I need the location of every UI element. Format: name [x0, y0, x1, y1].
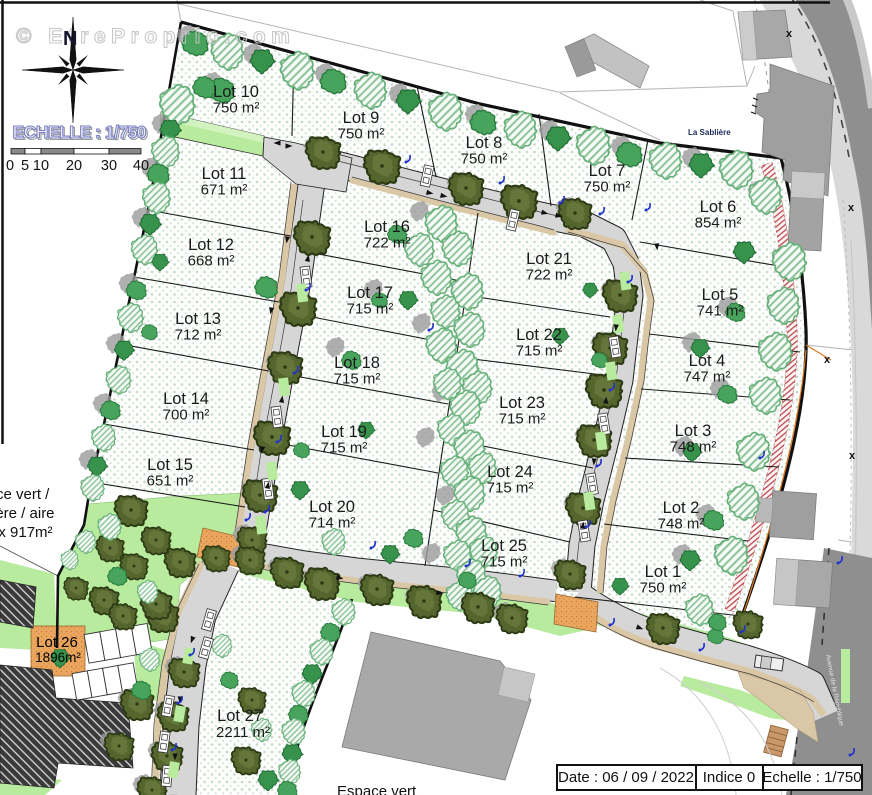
- svg-text:Lot 12: Lot 12: [188, 236, 234, 254]
- svg-text:Lot 8: Lot 8: [466, 134, 503, 152]
- svg-text:Lot 5: Lot 5: [702, 286, 739, 304]
- svg-text:Lot 23: Lot 23: [499, 394, 545, 412]
- svg-text:Date : 06 / 09 / 2022: Date : 06 / 09 / 2022: [558, 769, 694, 786]
- svg-text:722 m²: 722 m²: [364, 235, 411, 252]
- svg-text:Lot 21: Lot 21: [526, 250, 572, 268]
- svg-text:Espace vert: Espace vert: [337, 783, 417, 795]
- svg-text:2211 m²: 2211 m²: [216, 724, 270, 741]
- svg-text:712 m²: 712 m²: [175, 327, 222, 344]
- svg-text:Lot 14: Lot 14: [163, 390, 209, 408]
- svg-text:668 m²: 668 m²: [188, 253, 235, 270]
- svg-text:715 m²: 715 m²: [347, 301, 394, 318]
- svg-text:ux 917m²: ux 917m²: [0, 524, 53, 541]
- svg-text:Lot 16: Lot 16: [364, 218, 410, 236]
- svg-text:Lot 19: Lot 19: [321, 423, 367, 441]
- svg-text:30: 30: [101, 158, 117, 174]
- svg-text:Lot 26: Lot 26: [36, 634, 78, 651]
- svg-text:Lot 1: Lot 1: [645, 563, 682, 581]
- svg-text:715 m²: 715 m²: [334, 371, 381, 388]
- svg-text:ière / aire: ière / aire: [0, 505, 55, 522]
- svg-text:Lot 9: Lot 9: [343, 109, 380, 127]
- svg-text:750 m²: 750 m²: [338, 126, 385, 143]
- svg-text:741 m²: 741 m²: [697, 303, 744, 320]
- svg-text:Lot 25: Lot 25: [481, 537, 527, 555]
- svg-text:40: 40: [133, 158, 149, 174]
- svg-text:Lot 18: Lot 18: [334, 354, 380, 372]
- svg-text:700 m²: 700 m²: [163, 407, 210, 424]
- svg-text:20: 20: [66, 158, 82, 174]
- svg-text:© EtreProprio.com: © EtreProprio.com: [16, 25, 295, 48]
- svg-text:Lot 10: Lot 10: [213, 83, 259, 101]
- svg-text:Lot 20: Lot 20: [309, 498, 355, 516]
- svg-text:Lot 17: Lot 17: [347, 284, 393, 302]
- svg-text:ce vert /: ce vert /: [0, 486, 50, 503]
- svg-text:x: x: [786, 28, 793, 40]
- svg-text:747 m²: 747 m²: [684, 369, 731, 386]
- svg-text:1896m²: 1896m²: [35, 650, 81, 665]
- svg-text:Lot 7: Lot 7: [589, 162, 626, 180]
- svg-text:Lot 22: Lot 22: [516, 326, 562, 344]
- svg-text:715 m²: 715 m²: [516, 343, 563, 360]
- svg-text:Lot 11: Lot 11: [202, 165, 247, 183]
- svg-text:715 m²: 715 m²: [487, 480, 534, 497]
- svg-text:715 m²: 715 m²: [481, 554, 528, 571]
- svg-text:722 m²: 722 m²: [526, 267, 573, 284]
- svg-text:651 m²: 651 m²: [147, 473, 194, 490]
- svg-text:Lot 2: Lot 2: [663, 499, 700, 517]
- svg-text:x: x: [824, 354, 831, 366]
- svg-text:671 m²: 671 m²: [201, 182, 248, 199]
- svg-text:ECHELLE : 1/750: ECHELLE : 1/750: [13, 122, 147, 142]
- svg-text:715 m²: 715 m²: [321, 440, 368, 457]
- svg-text:Lot 27: Lot 27: [217, 707, 263, 725]
- svg-text:N: N: [63, 28, 77, 50]
- svg-text:714 m²: 714 m²: [309, 515, 356, 532]
- svg-text:854 m²: 854 m²: [695, 215, 742, 232]
- svg-text:Indice 0: Indice 0: [703, 769, 756, 786]
- svg-text:Lot 24: Lot 24: [487, 463, 533, 481]
- svg-text:La Sablière: La Sablière: [688, 128, 731, 137]
- svg-text:750 m²: 750 m²: [213, 100, 260, 117]
- svg-text:10: 10: [33, 158, 49, 174]
- svg-text:Lot 4: Lot 4: [689, 352, 726, 370]
- svg-text:748 m²: 748 m²: [670, 439, 717, 456]
- svg-text:Echelle : 1/750: Echelle : 1/750: [762, 769, 861, 786]
- svg-text:750 m²: 750 m²: [640, 580, 687, 597]
- svg-text:x: x: [849, 450, 856, 462]
- svg-text:5: 5: [21, 158, 29, 174]
- svg-text:Lot 15: Lot 15: [147, 456, 193, 474]
- svg-text:750 m²: 750 m²: [461, 151, 508, 168]
- svg-text:x: x: [848, 202, 855, 214]
- svg-text:715 m²: 715 m²: [499, 411, 546, 428]
- svg-text:Lot 3: Lot 3: [675, 422, 712, 440]
- svg-text:750 m²: 750 m²: [584, 179, 631, 196]
- svg-text:0: 0: [6, 158, 14, 174]
- svg-text:748 m²: 748 m²: [658, 516, 705, 533]
- svg-text:Lot 6: Lot 6: [700, 198, 737, 216]
- svg-text:Lot 13: Lot 13: [175, 310, 221, 328]
